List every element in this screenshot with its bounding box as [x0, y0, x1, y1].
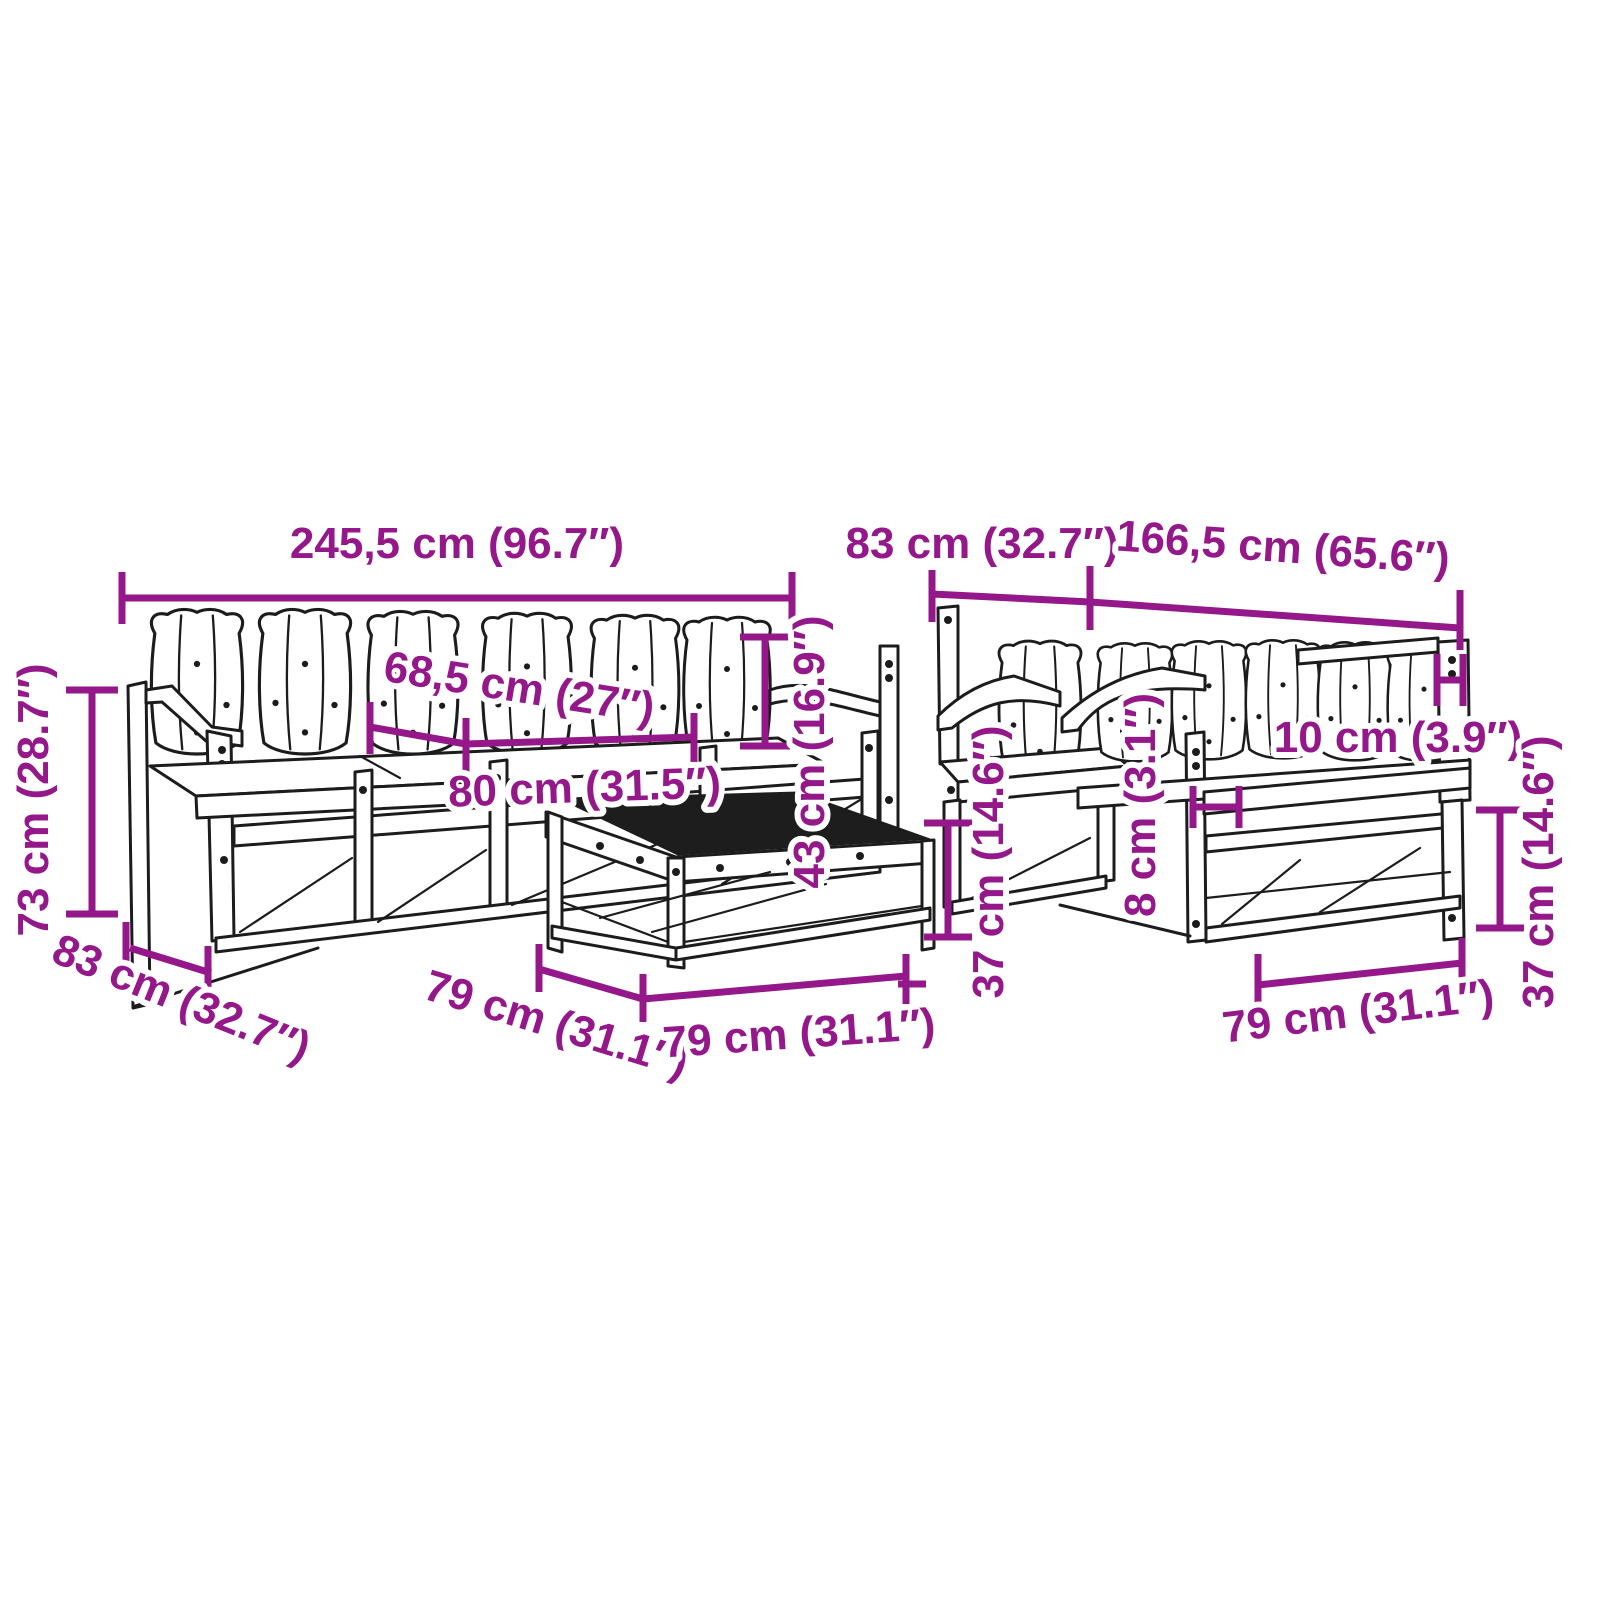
dimension-label: 166,5 cm (65.6″): [1115, 511, 1452, 583]
dimension-label: 83 cm (32.7″): [46, 925, 317, 1073]
dimension-table-height: 37 cm (14.6″): [924, 725, 1013, 998]
dimension-overall-width: 245,5 cm (96.7″): [122, 519, 792, 624]
dimension-label: 8 cm (3.1″): [1116, 693, 1165, 917]
dimension-label: 37 cm (14.6″): [964, 725, 1013, 998]
dimension-seat-depth-top: 83 cm (32.7″): [845, 519, 1118, 630]
dimension-base-height: 37 cm (14.6″): [1476, 735, 1563, 1008]
dimension-overall-height: 73 cm (28.7″): [9, 663, 118, 936]
dimension-seat-module-width: 79 cm (31.1″): [1220, 938, 1497, 1053]
dimension-label: 73 cm (28.7″): [9, 663, 58, 936]
dimension-label: 80 cm (31.5″): [447, 758, 722, 816]
dimension-label: 79 cm (31.1″): [419, 961, 694, 1088]
dimension-table-depth: 79 cm (31.1″): [419, 944, 694, 1087]
diagram-canvas: 245,5 cm (96.7″) 83 cm (32.7″) 166,5 cm …: [0, 0, 1600, 1600]
back-post: [938, 606, 958, 764]
dimension-two-seater-width: 166,5 cm (65.6″): [1090, 511, 1460, 650]
cushion: [259, 609, 350, 754]
dimension-label: 43 cm (16.9″): [785, 615, 834, 888]
cushion: [1172, 641, 1246, 759]
dimension-label: 245,5 cm (96.7″): [290, 519, 624, 568]
dimension-diagram: 245,5 cm (96.7″) 83 cm (32.7″) 166,5 cm …: [0, 0, 1600, 1600]
dimension-label: 83 cm (32.7″): [845, 519, 1118, 568]
dimension-label: 79 cm (31.1″): [661, 1000, 937, 1068]
dimension-label: 10 cm (3.9″): [1274, 713, 1523, 762]
dimension-table-width: 79 cm (31.1″): [643, 954, 937, 1067]
dimension-label: 37 cm (14.6″): [1514, 735, 1563, 1008]
